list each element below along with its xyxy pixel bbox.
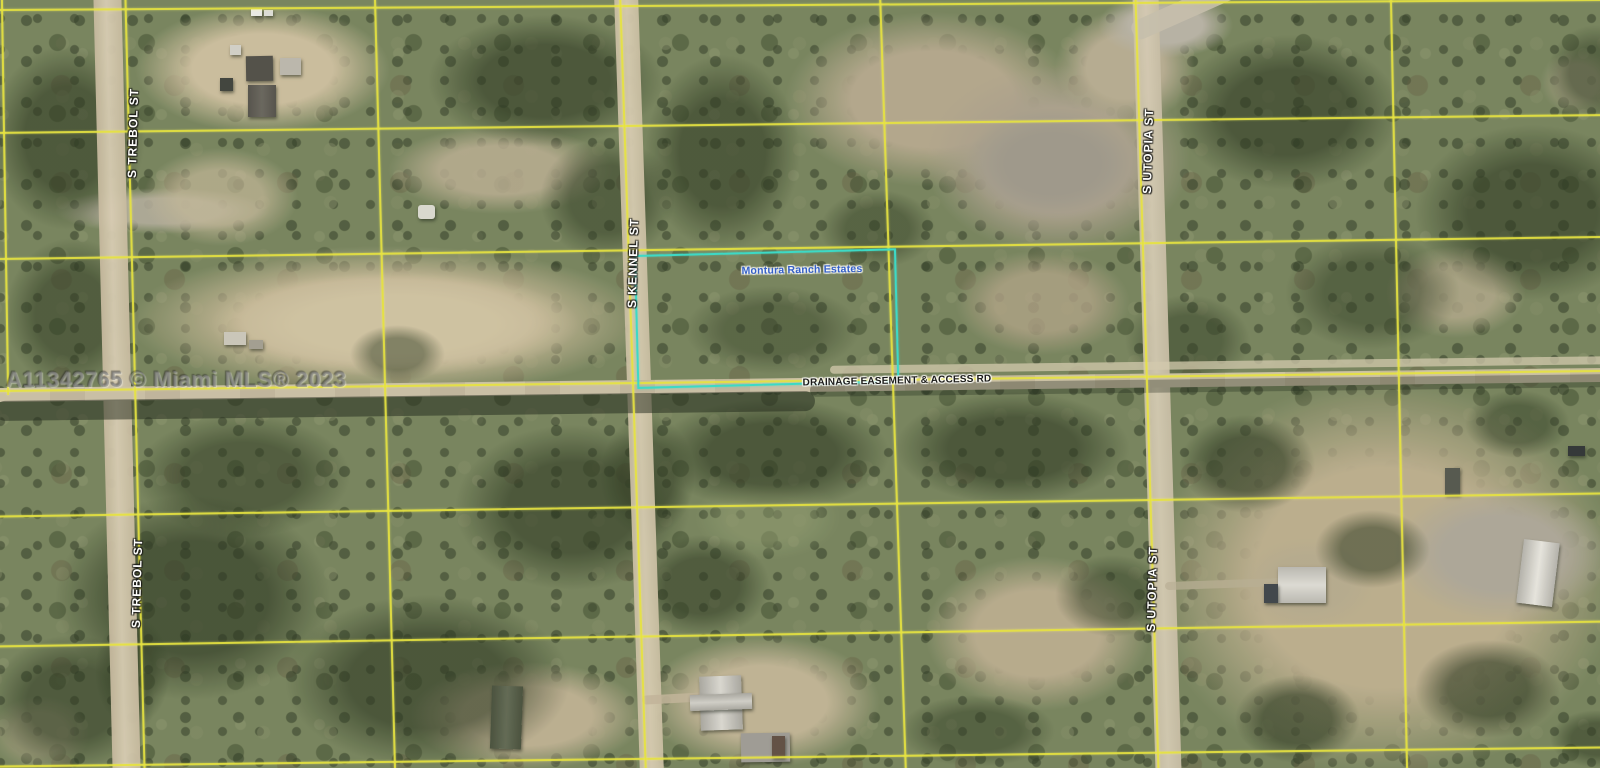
building [1278,567,1326,603]
tree-clump [1465,390,1570,458]
satellite-map: S TREBOL ST S TREBOL ST S KENNEL ST S UT… [0,0,1600,768]
vehicle [220,78,233,91]
vehicle [1264,584,1278,603]
mls-watermark: A11342765 © Miami MLS® 2023 [6,367,347,393]
street-label-s-kennel: S KENNEL ST [626,218,640,308]
building [1445,468,1460,495]
street-label-s-utopia-upper: S UTOPIA ST [1141,108,1155,194]
vehicle [772,736,785,758]
clearing-patch [965,108,1140,220]
building [418,205,435,219]
tree-clump [135,415,350,537]
building [230,45,241,55]
clearing-patch [143,148,298,246]
tree-clump [285,595,570,767]
street-label-s-utopia-lower: S UTOPIA ST [1145,546,1159,632]
tree-clump [350,325,445,383]
vehicle [264,10,273,16]
tree-clump [1315,510,1430,588]
building [690,693,753,711]
vehicle [251,9,262,16]
vehicle [1568,446,1585,456]
tree-clump [645,55,800,250]
tree-clump [1175,35,1400,190]
street-label-s-trebol-upper: S TREBOL ST [126,88,140,178]
building [246,56,273,81]
building [249,340,263,349]
street-label-s-trebol-lower: S TREBOL ST [130,538,144,628]
building [248,85,276,117]
tree-clump [1285,235,1460,350]
tree-clump [1415,640,1560,738]
clearing-patch [955,250,1130,355]
building [224,332,246,345]
building [280,58,301,75]
tree-clump [895,392,1130,504]
parcel-label-montura-ranch-estates: Montura Ranch Estates [741,263,862,277]
building [490,685,523,749]
